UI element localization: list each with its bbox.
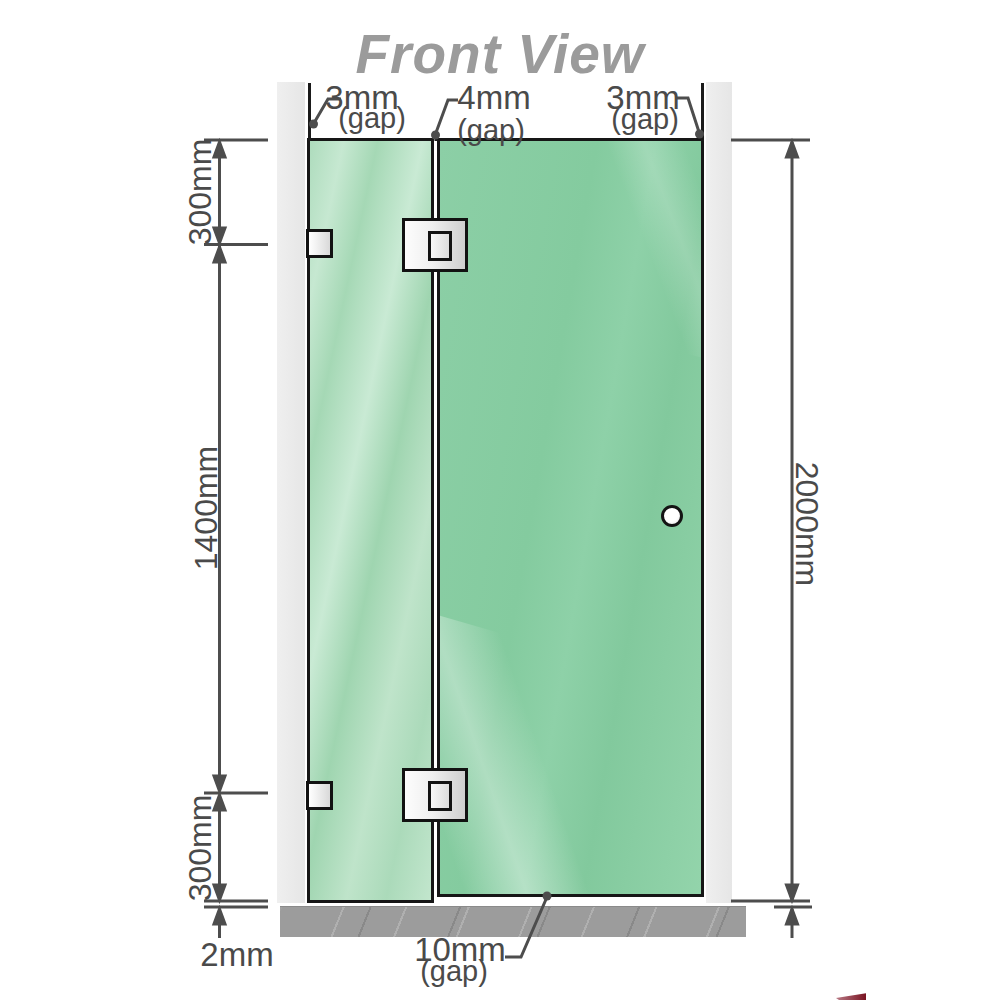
gap-label-middle-value: 4mm — [444, 79, 544, 117]
front-view-diagram: Front View — [0, 0, 1000, 1000]
dimension-label-top-300mm: 300mm — [182, 122, 216, 262]
wall-bracket-bottom — [306, 781, 333, 810]
door-handle-knob — [661, 505, 683, 527]
gap-label-left-unit: (gap) — [322, 102, 422, 135]
gap-label-right-unit: (gap) — [595, 103, 695, 136]
dimension-label-floor-gap-2mm: 2mm — [177, 936, 297, 974]
dimension-label-bottom-300mm: 300mm — [182, 778, 216, 918]
gap-label-middle-unit: (gap) — [441, 114, 541, 147]
glass-reflection — [503, 138, 704, 366]
right-wall — [706, 82, 732, 903]
left-wall — [277, 82, 305, 903]
dimension-label-door-gap-unit: (gap) — [394, 955, 514, 988]
door-glass-panel — [437, 138, 704, 897]
glass-reflection — [437, 608, 704, 897]
dimension-label-middle-1400mm: 1400mm — [188, 423, 222, 593]
dimension-label-total-2000mm: 2000mm — [791, 439, 825, 609]
diagram-title: Front View — [0, 22, 1000, 86]
wall-bracket-top — [306, 229, 333, 258]
glass-hinge-top-plate — [428, 231, 452, 261]
glass-hinge-bottom-plate — [428, 781, 452, 811]
corner-watermark — [836, 993, 866, 1000]
